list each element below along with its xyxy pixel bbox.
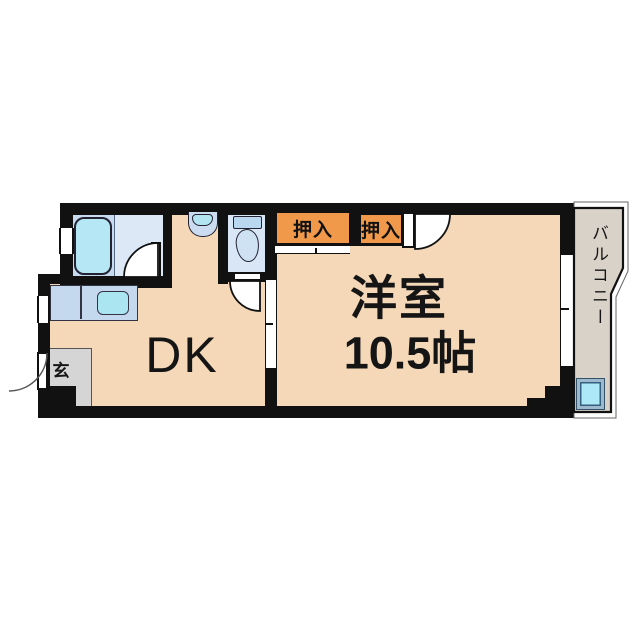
wall-bottom [38, 406, 574, 418]
washbasin-icon [188, 212, 218, 237]
washing-machine-pan-icon [577, 379, 604, 409]
dk-room-sliding-door [265, 280, 277, 368]
closet-left-label: 押入 [293, 215, 333, 242]
floor-plan: 押入 押入 DK 洋室 10.5帖 玄 バルコニー [0, 0, 640, 640]
closet-right: 押入 [358, 212, 404, 246]
western-room-size-label: 10.5帖 [344, 317, 477, 382]
wall-corner-step-1 [545, 386, 574, 406]
balcony-sliding-door [560, 255, 574, 366]
closet-left: 押入 [274, 210, 352, 246]
toilet-tank [233, 216, 262, 229]
toilet-door-leaf [233, 272, 262, 281]
sliding-door-tick [561, 308, 569, 310]
toilet-icon [233, 216, 262, 262]
wall-entrance-block [38, 386, 76, 418]
sliding-door-tick [315, 248, 317, 253]
wall-corner-step-2 [527, 398, 545, 406]
closet-right-label: 押入 [361, 216, 401, 243]
balcony-label: バルコニー [586, 224, 611, 354]
sliding-door-tick [266, 323, 273, 325]
bathroom-door-leaf [151, 242, 161, 278]
bathtub-icon [74, 217, 112, 275]
western-room-door-leaf [402, 212, 415, 248]
dk-room-label: DK [145, 326, 218, 384]
entrance-door-leaf [37, 352, 48, 390]
entrance-floor-ext [74, 390, 92, 407]
wall-right-upper [560, 203, 574, 255]
washbasin-bowl [192, 214, 213, 226]
wall-divider-lower [265, 368, 277, 418]
kitchen-sink-icon [97, 291, 129, 315]
toilet-bowl [234, 228, 260, 263]
closet-sliding-front [275, 246, 350, 254]
bathroom-window [59, 228, 74, 254]
kitchen-window [37, 296, 50, 323]
wall-toilet-bottom-left [218, 272, 234, 282]
counter-divider [80, 286, 82, 319]
entrance-label: 玄 [53, 357, 70, 382]
